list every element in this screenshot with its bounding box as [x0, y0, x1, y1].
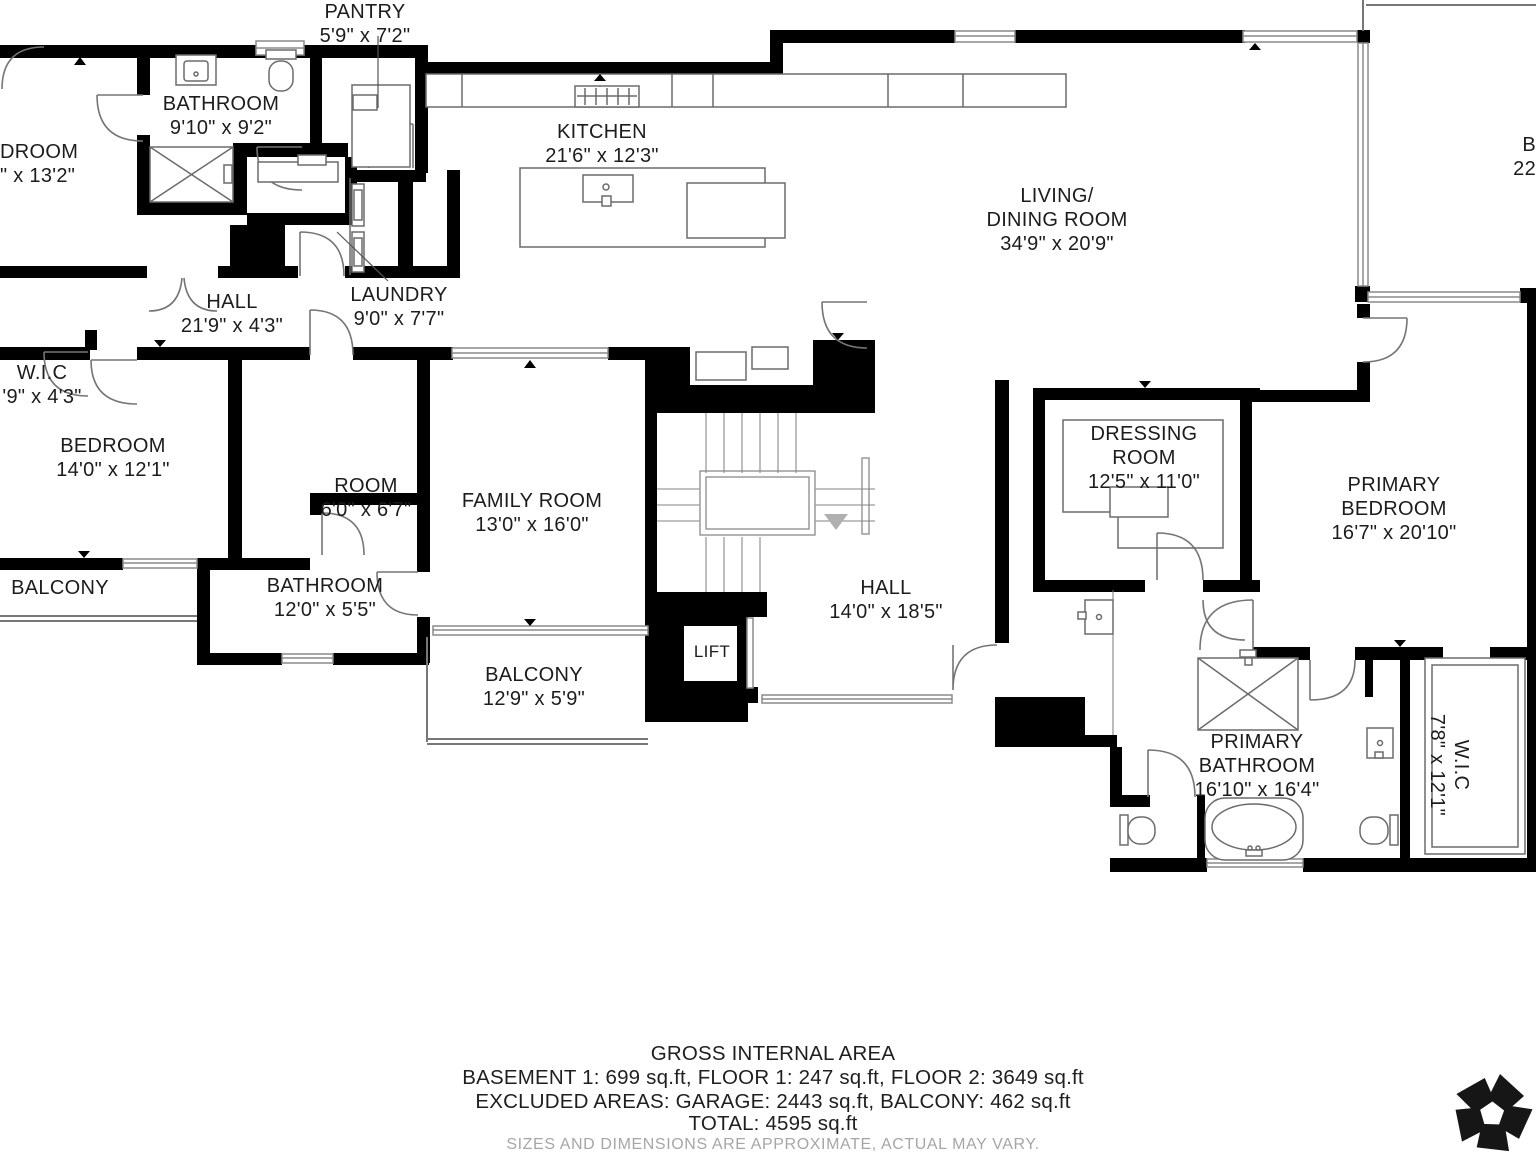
footer-disclaimer: SIZES AND DIMENSIONS ARE APPROXIMATE, AC… — [506, 1136, 1039, 1152]
toilet-icon — [1120, 815, 1155, 845]
room-label-hall-lower: HALL 14'0" x 18'5" — [829, 576, 943, 624]
room-dims: '9" x 4'3" — [0, 385, 84, 409]
room-name: BATHROOM — [1194, 754, 1319, 778]
kitchen-table — [687, 183, 785, 238]
room-label-hall-upper: HALL 21'9" x 4'3" — [181, 290, 283, 338]
room-name: BATHROOM — [163, 92, 279, 116]
room-label-laundry: LAUNDRY 9'0" x 7'7" — [350, 283, 447, 331]
floor-plan-page: PANTRY 5'9" x 7'2" BATHROOM 9'10" x 9'2"… — [0, 0, 1536, 1152]
room-label-bedroom-left: BEDROOM 14'0" x 12'1" — [56, 434, 170, 482]
footer-title: GROSS INTERNAL AREA — [651, 1042, 896, 1066]
room-dims: 6'0" x 6'7" — [321, 498, 412, 522]
room-name: W.I.C — [1449, 714, 1473, 816]
room-label-room-small: ROOM 6'0" x 6'7" — [321, 474, 412, 522]
room-dims: 14'0" x 12'1" — [56, 458, 170, 482]
room-label-bedroom-topleft: DROOM " x 13'2" — [0, 140, 78, 188]
room-name: LAUNDRY — [350, 283, 447, 307]
toilet-icon — [1360, 815, 1398, 845]
room-dims: 12'5" x 11'0" — [1088, 470, 1200, 494]
room-dims: 21'6" x 12'3" — [545, 144, 659, 168]
room-name: W.I.C — [0, 361, 84, 385]
room-name: BATHROOM — [267, 574, 383, 598]
room-dims: 21'9" x 4'3" — [181, 314, 283, 338]
shower-icon — [150, 147, 233, 202]
room-name: BALCONY — [11, 576, 109, 600]
room-name: HALL — [181, 290, 283, 314]
room-name: DRESSING — [1088, 422, 1200, 446]
room-name: B — [1513, 133, 1536, 157]
room-name: PANTRY — [320, 0, 411, 24]
room-dims: 13'0" x 16'0" — [462, 513, 602, 537]
room-dims: 16'10" x 16'4" — [1194, 778, 1319, 802]
floor-plan-drawing — [0, 0, 1536, 1152]
toilet-icon — [266, 50, 296, 91]
room-dims: 9'10" x 9'2" — [163, 116, 279, 140]
room-label-living-dining: LIVING/ DINING ROOM 34'9" x 20'9" — [986, 184, 1127, 256]
room-dims: 12'9" x 5'9" — [483, 687, 585, 711]
room-dims: 5'9" x 7'2" — [320, 24, 411, 48]
cabinet — [752, 347, 788, 369]
shower-icon — [1198, 650, 1298, 730]
room-label-wic-right: W.I.C 7'8" x 12'1" — [1425, 714, 1473, 816]
room-label-wic-left: W.I.C '9" x 4'3" — [0, 361, 84, 409]
room-dims: 7'8" x 12'1" — [1425, 714, 1449, 816]
cabinet — [696, 352, 746, 380]
footer-areas-line1: BASEMENT 1: 699 sq.ft, FLOOR 1: 247 sq.f… — [462, 1066, 1084, 1090]
room-name: HALL — [829, 576, 943, 600]
room-name: PRIMARY — [1194, 730, 1319, 754]
room-label-balcony-right-truncated: B 22 — [1513, 133, 1536, 181]
room-name: BEDROOM — [1331, 497, 1456, 521]
room-label-family-room: FAMILY ROOM 13'0" x 16'0" — [462, 489, 602, 537]
footer-total: TOTAL: 4595 sq.ft — [688, 1112, 857, 1136]
room-dims: 14'0" x 18'5" — [829, 600, 943, 624]
room-name: BALCONY — [483, 663, 585, 687]
room-label-balcony-lower: BALCONY 12'9" x 5'9" — [483, 663, 585, 711]
room-label-dressing-room: DRESSING ROOM 12'5" x 11'0" — [1088, 422, 1200, 494]
kitchen-counter — [426, 74, 1066, 107]
room-dims: 22 — [1513, 157, 1536, 181]
room-label-pantry: PANTRY 5'9" x 7'2" — [320, 0, 411, 48]
room-dims: 9'0" x 7'7" — [350, 307, 447, 331]
sink-icon — [176, 55, 216, 85]
room-name: LIVING/ — [986, 184, 1127, 208]
room-label-lift: LIFT — [694, 640, 730, 664]
room-label-bathroom-mid: BATHROOM 12'0" x 5'5" — [267, 574, 383, 622]
room-name: FAMILY ROOM — [462, 489, 602, 513]
sink-icon — [1078, 600, 1113, 634]
room-name: ROOM — [321, 474, 412, 498]
room-label-balcony-left: BALCONY — [11, 576, 109, 600]
stairs-down-arrow-icon — [824, 514, 848, 530]
room-name: KITCHEN — [545, 120, 659, 144]
room-label-primary-bathroom: PRIMARY BATHROOM 16'10" x 16'4" — [1194, 730, 1319, 802]
room-dims: 12'0" x 5'5" — [267, 598, 383, 622]
room-label-primary-bedroom: PRIMARY BEDROOM 16'7" x 20'10" — [1331, 473, 1456, 545]
room-name: BEDROOM — [56, 434, 170, 458]
room-label-kitchen: KITCHEN 21'6" x 12'3" — [545, 120, 659, 168]
pinwheel-logo-icon — [1443, 1071, 1536, 1152]
bathtub-icon — [1205, 798, 1303, 860]
room-name: LIFT — [694, 640, 730, 664]
room-dims: 34'9" x 20'9" — [986, 232, 1127, 256]
closet-shelf — [298, 155, 326, 165]
washer-dryer-icon — [350, 178, 364, 275]
sink-icon — [1367, 728, 1393, 758]
footer-areas-line2: EXCLUDED AREAS: GARAGE: 2443 sq.ft, BALC… — [475, 1090, 1070, 1114]
room-name: DINING ROOM — [986, 208, 1127, 232]
staircase — [657, 413, 875, 592]
room-dims: " x 13'2" — [0, 164, 78, 188]
room-name: PRIMARY — [1331, 473, 1456, 497]
room-name: ROOM — [1088, 446, 1200, 470]
pantry-shelf — [353, 95, 377, 110]
room-dims: 16'7" x 20'10" — [1331, 521, 1456, 545]
room-label-bathroom-top: BATHROOM 9'10" x 9'2" — [163, 92, 279, 140]
room-name: DROOM — [0, 140, 78, 164]
stove-icon — [575, 86, 639, 107]
